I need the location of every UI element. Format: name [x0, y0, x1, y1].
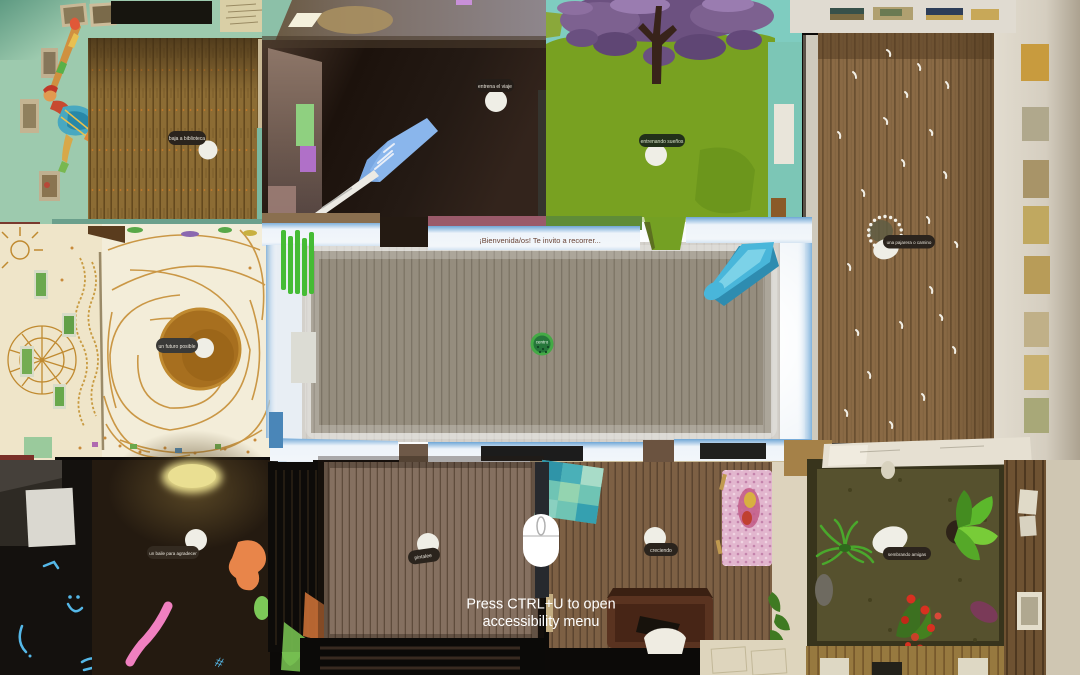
svg-text:entrena el viaje: entrena el viaje: [478, 84, 512, 90]
svg-text:centro: centro: [536, 340, 549, 345]
svg-text:sembrando amigas: sembrando amigas: [888, 552, 927, 557]
svg-text:baja a biblioteca: baja a biblioteca: [169, 136, 205, 142]
svg-text:accessibility menu: accessibility menu: [483, 614, 600, 630]
svg-text:creciendo: creciendo: [650, 548, 672, 554]
svg-text:¡Bienvenida/os! Te invito a re: ¡Bienvenida/os! Te invito a recorrer...: [479, 236, 601, 245]
svg-text:una pajarera o camino: una pajarera o camino: [887, 240, 932, 245]
svg-text:un baile para agradecer: un baile para agradecer: [149, 551, 197, 556]
svg-text:Press CTRL+U to open: Press CTRL+U to open: [466, 597, 615, 613]
svg-text:un futuro posible: un futuro posible: [159, 344, 196, 350]
svg-text:entrenando sueños: entrenando sueños: [641, 139, 684, 145]
